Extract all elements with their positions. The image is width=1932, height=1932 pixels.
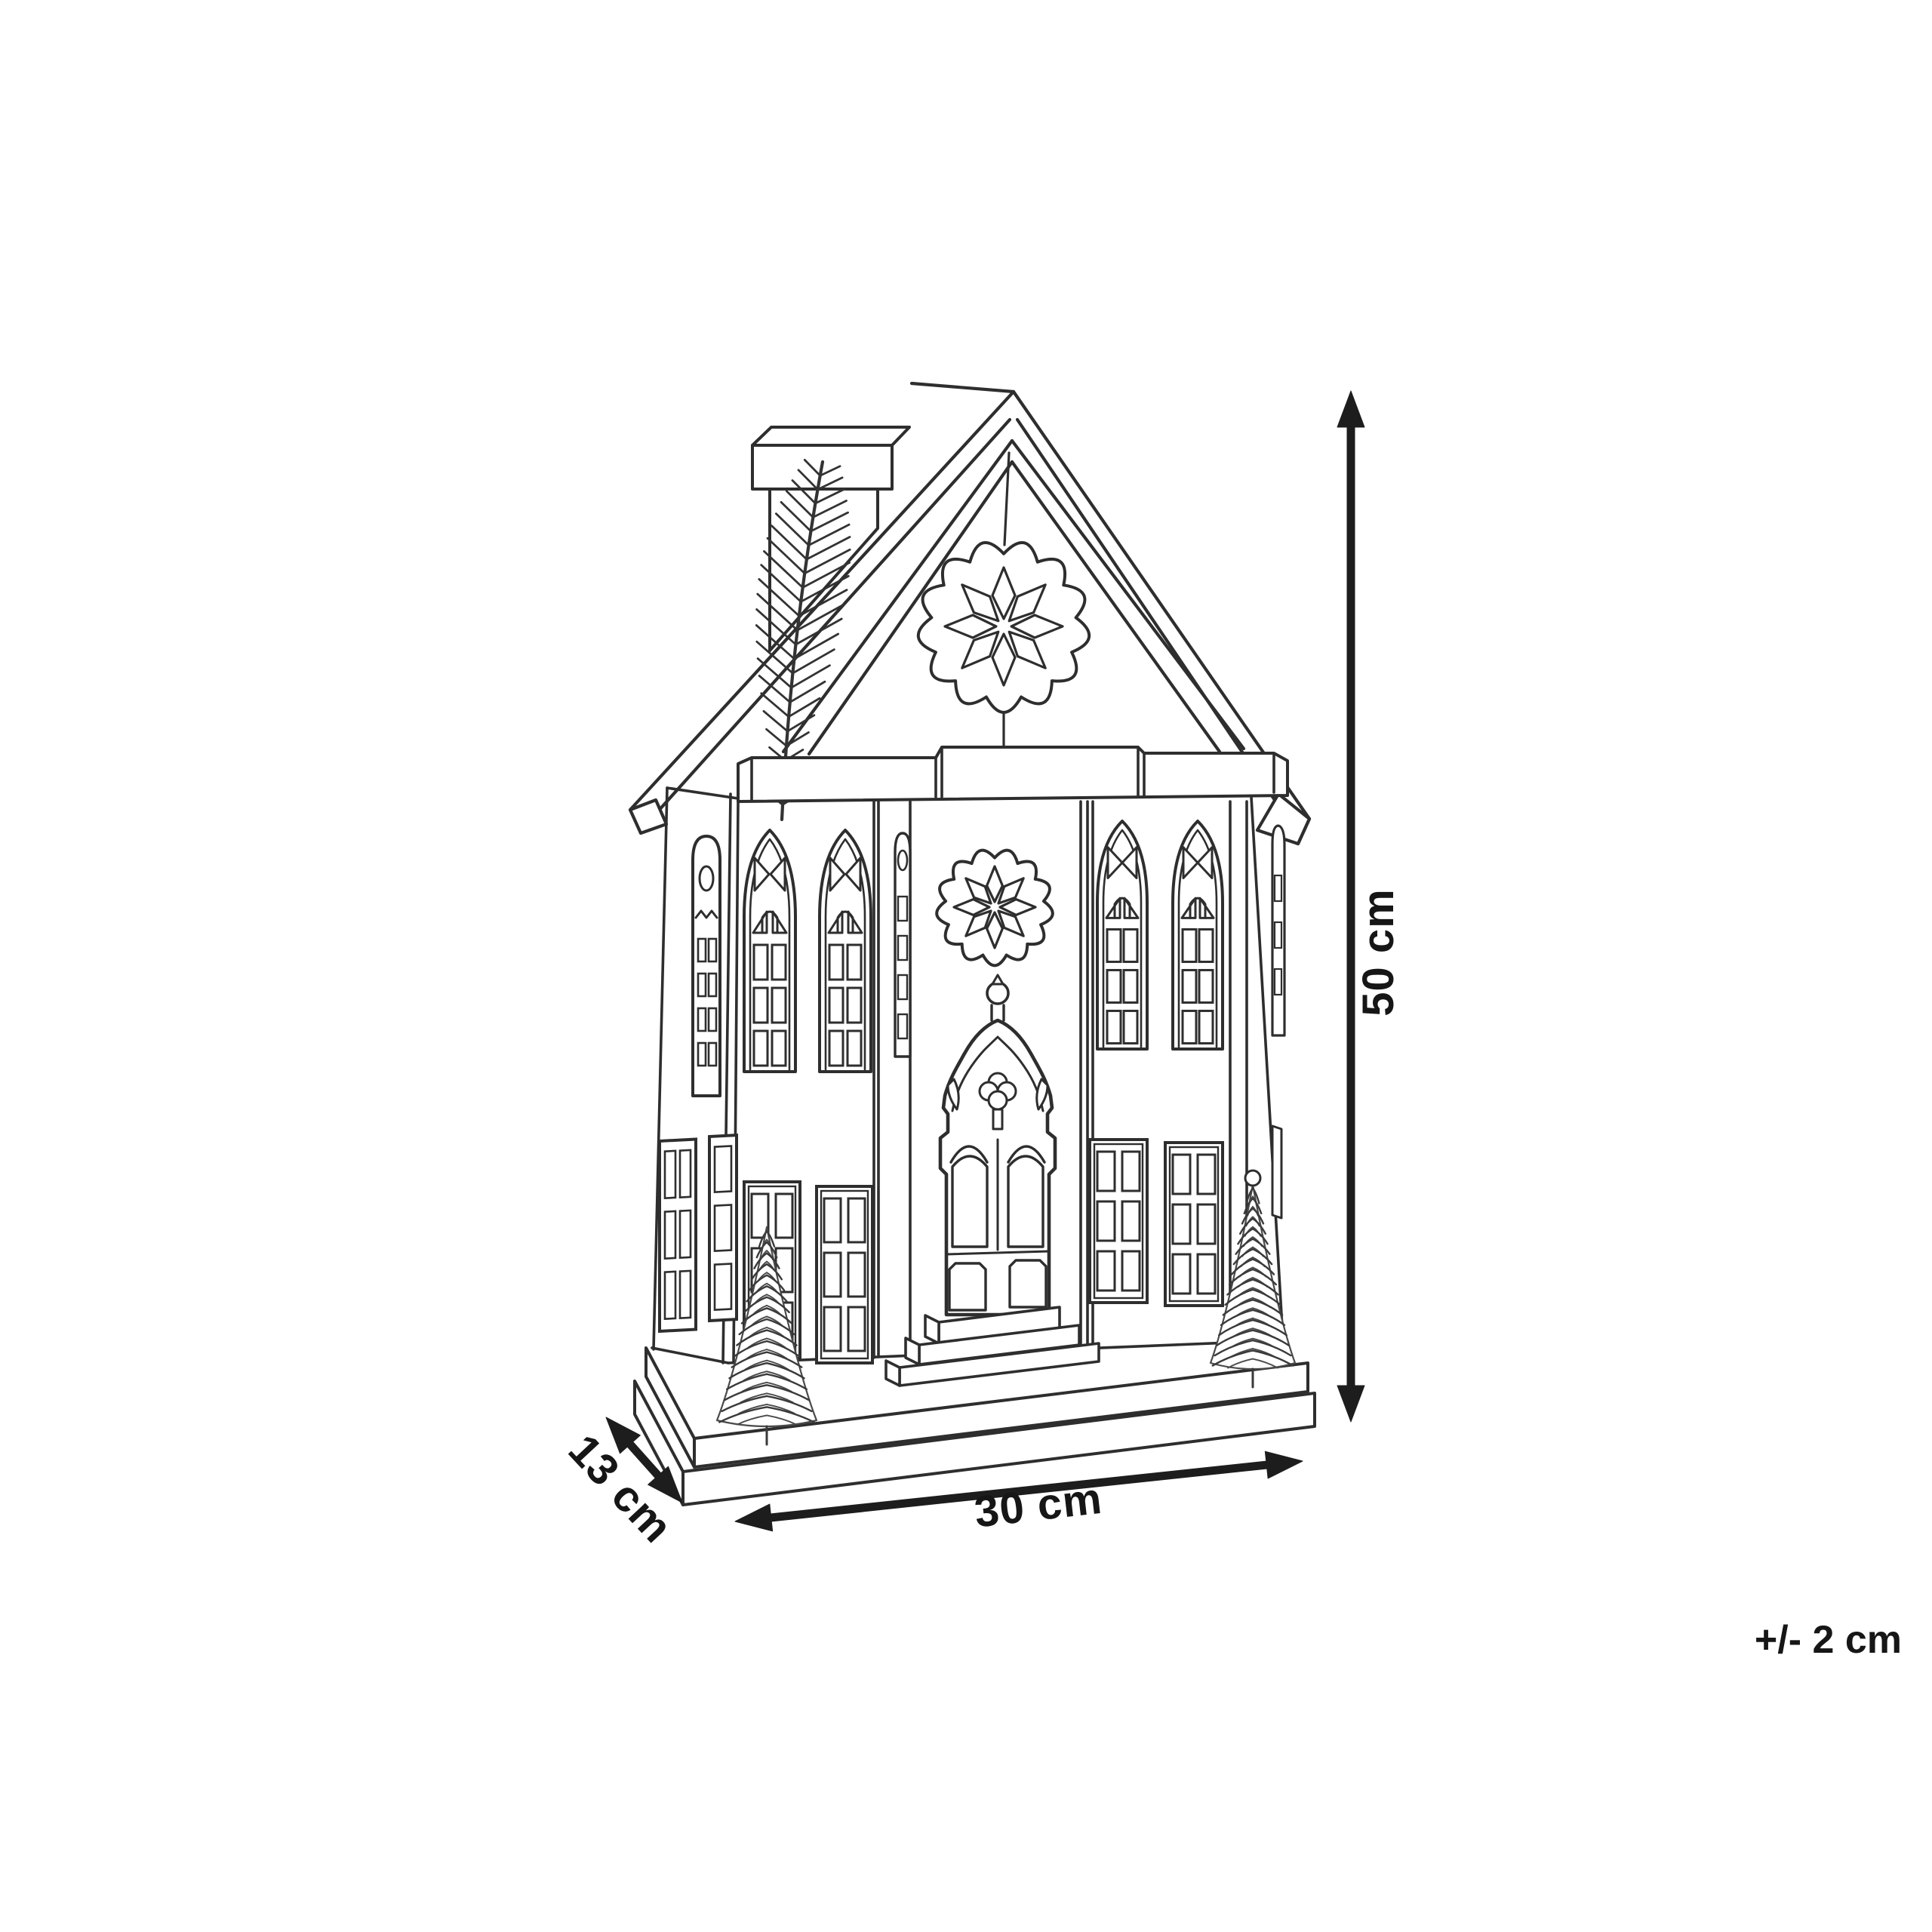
tolerance-label: +/- 2 cm	[1755, 1618, 1902, 1662]
width-dimension-label: 30 cm	[972, 1474, 1105, 1537]
product-dimension-diagram: 50 cm 30 cm 13 cm +/- 2 cm	[0, 0, 1932, 1932]
entrance-steps	[886, 1307, 1099, 1386]
gothic-door	[940, 975, 1055, 1315]
diagram-canvas: 50 cm 30 cm 13 cm +/- 2 cm	[0, 0, 1932, 1932]
height-dimension-label: 50 cm	[1354, 888, 1403, 1016]
door-finial	[987, 983, 1008, 1004]
